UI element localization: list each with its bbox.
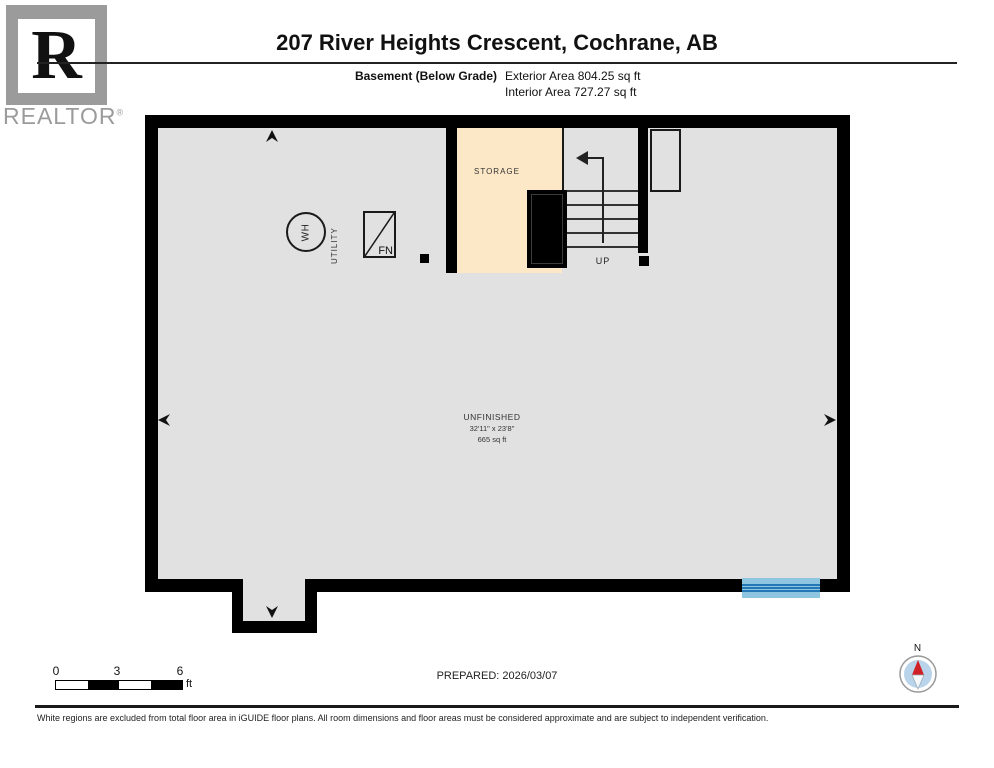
wall-bottom-mid-segment [317, 579, 742, 592]
furnace-symbol: FN [363, 211, 396, 258]
window-pane-line [742, 590, 820, 592]
header-divider [37, 62, 957, 64]
wall-top [145, 115, 850, 128]
window-pane-line [742, 584, 820, 586]
stairs-up-label: UP [588, 256, 618, 266]
realtor-wordmark: REALTOR® [3, 103, 124, 130]
stair-direction-arrow-icon [570, 150, 610, 250]
registered-trademark-symbol: ® [117, 107, 125, 117]
wall-bottom-right-segment [820, 579, 850, 592]
wall-right [837, 115, 850, 592]
bumpout-wall-bottom [232, 621, 317, 633]
under-stair-closet-outline [650, 129, 681, 192]
room-dimensions: 32'11" x 23'8" [412, 424, 572, 433]
south-wall-arrow-icon [266, 606, 278, 618]
interior-area-label: Interior Area 727.27 sq ft [505, 85, 636, 99]
utility-area-label: UTILITY [330, 212, 339, 264]
storage-stair-divider [562, 128, 564, 190]
room-area: 665 sq ft [412, 435, 572, 444]
realtor-wordmark-text: REALTOR [3, 103, 117, 129]
water-heater-label: WH [300, 223, 311, 241]
scale-segment [119, 681, 151, 689]
wall-bottom-left-segment [145, 579, 243, 592]
storage-wall [446, 128, 457, 273]
column-marker [639, 256, 649, 266]
scale-segment [56, 681, 88, 689]
exterior-area-label: Exterior Area 804.25 sq ft [505, 69, 640, 83]
disclaimer-text: White regions are excluded from total fl… [37, 713, 967, 723]
column-marker [420, 254, 429, 263]
prepared-date: PREPARED: 2026/03/07 [0, 670, 994, 682]
realtor-logo-inner: R [18, 19, 95, 93]
wall-left [145, 115, 158, 592]
scale-segment [151, 681, 183, 689]
realtor-logo-r-icon: R [31, 21, 82, 91]
compass: N [895, 643, 940, 698]
storage-room-label: STORAGE [455, 167, 539, 176]
compass-north-label: N [895, 643, 940, 654]
window-pane-line [742, 587, 820, 589]
north-wall-arrow-icon [266, 130, 278, 142]
floor-plan-page: R REALTOR® 207 River Heights Crescent, C… [0, 0, 994, 768]
room-name: UNFINISHED [412, 412, 572, 422]
east-wall-arrow-icon [824, 414, 836, 426]
footer-divider [35, 705, 959, 708]
basement-window [742, 578, 820, 598]
unfinished-room-label: UNFINISHED 32'11" x 23'8" 665 sq ft [412, 412, 572, 444]
realtor-logo: R [6, 5, 107, 105]
page-title: 207 River Heights Crescent, Cochrane, AB [0, 30, 994, 56]
water-heater-symbol: WH [286, 212, 326, 252]
furnace-label: FN [378, 245, 393, 257]
scale-segment [88, 681, 120, 689]
chimney-block [527, 190, 567, 268]
stair-wall-right [638, 128, 648, 253]
compass-icon [899, 655, 937, 693]
chimney-inner-outline [531, 194, 563, 264]
west-wall-arrow-icon [158, 414, 170, 426]
